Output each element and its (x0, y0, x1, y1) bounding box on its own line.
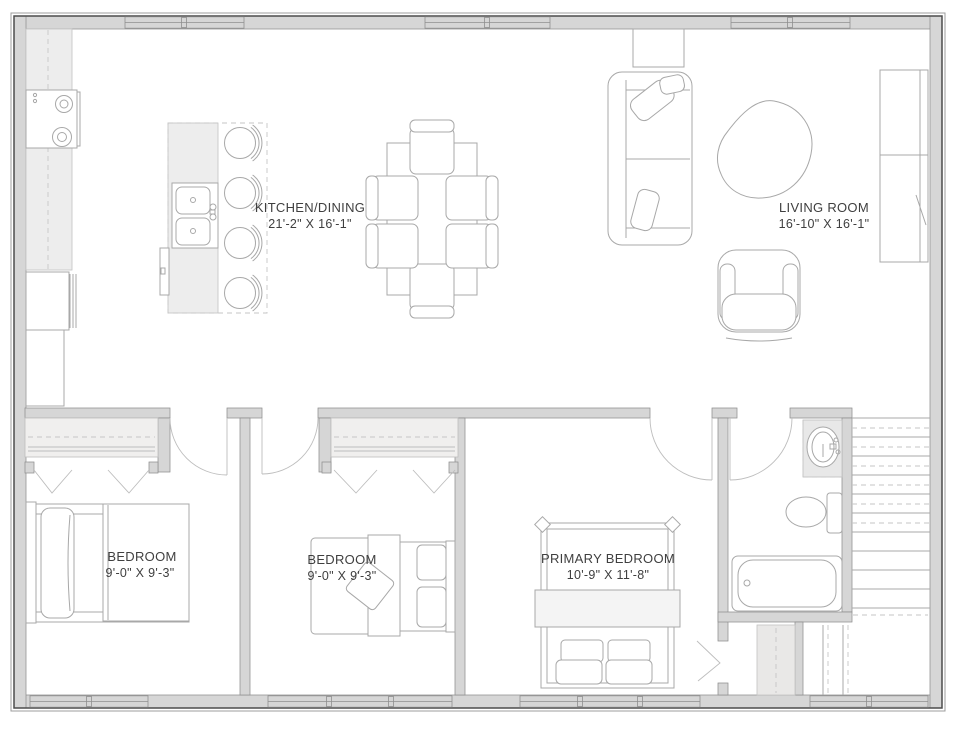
kitchen-area (26, 29, 498, 406)
bifold-door (334, 470, 377, 493)
pillow (608, 640, 650, 662)
understairs-closet (697, 625, 795, 695)
bar-stools (225, 125, 262, 311)
living-room-area (608, 29, 928, 341)
dining-chair (446, 224, 498, 268)
door-bedroom1 (170, 418, 227, 475)
bathtub (732, 556, 842, 611)
dining-chair (410, 120, 454, 174)
vanity-sink (803, 420, 842, 477)
bean-bag (717, 101, 811, 198)
bifold-door (413, 470, 455, 493)
floor-plan: KITCHEN/DINING 21'-2" X 16'-1" LIVING RO… (0, 0, 956, 737)
pillow (417, 545, 446, 580)
primary-bed (535, 517, 681, 688)
dining-chair (446, 176, 498, 220)
bedroom2-bed (311, 535, 455, 636)
dining-chair (366, 176, 418, 220)
door-bedroom2 (262, 418, 318, 474)
door-bathroom (730, 418, 792, 480)
kitchen-island (160, 123, 267, 313)
pantry-cabinet (26, 330, 64, 406)
refrigerator (26, 272, 76, 330)
bedroom1-dims: 9'-0" X 9'-3" (106, 566, 175, 580)
bedroom1-name: BEDROOM (107, 549, 176, 564)
pillow (417, 587, 446, 627)
pillow (561, 640, 603, 662)
toilet (786, 493, 842, 533)
bar-stool (225, 225, 262, 261)
bifold-door (34, 470, 72, 493)
door-primary-bedroom (650, 418, 712, 480)
closet-bedroom2 (322, 418, 458, 493)
label-kitchen-dining: KITCHEN/DINING 21'-2" X 16'-1" (255, 200, 365, 231)
living-room-dims: 16'-10" X 16'-1" (779, 217, 870, 231)
primary-bedroom-name: PRIMARY BEDROOM (541, 551, 675, 566)
wall-bathroom-stairs (842, 418, 852, 612)
pillow (556, 660, 602, 684)
floor-plan-drawing: KITCHEN/DINING 21'-2" X 16'-1" LIVING RO… (0, 0, 956, 737)
dining-chair (410, 264, 454, 318)
label-living-room: LIVING ROOM 16'-10" X 16'-1" (779, 200, 870, 231)
sofa (608, 72, 692, 245)
bedroom2-name: BEDROOM (307, 552, 376, 567)
doors (170, 418, 792, 480)
headboard (26, 502, 36, 623)
kitchen-counter (26, 29, 72, 270)
kitchen-dining-dims: 21'-2" X 16'-1" (268, 217, 351, 231)
bifold-door (697, 641, 720, 681)
dining-table-set (366, 120, 498, 318)
headboard (446, 541, 455, 632)
wall-bedroom2-primary (455, 418, 465, 695)
dining-chair (366, 224, 418, 268)
stair-treads (852, 418, 930, 608)
bar-stool (225, 275, 262, 311)
range (26, 90, 80, 148)
pillow (606, 660, 652, 684)
media-cabinet (880, 70, 928, 262)
tv-console (633, 29, 684, 67)
kitchen-sink (172, 183, 218, 248)
living-room-name: LIVING ROOM (779, 200, 869, 215)
bar-stool (225, 125, 262, 161)
bifold-door (108, 470, 149, 493)
armchair (718, 250, 800, 341)
wall-primary-bathroom (718, 418, 728, 641)
primary-bedroom-dims: 10'-9" X 11'-8" (567, 568, 650, 582)
blanket (535, 590, 680, 627)
bathroom-area (732, 420, 842, 611)
kitchen-dining-name: KITCHEN/DINING (255, 200, 365, 215)
wall-bedroom1-bedroom2 (240, 418, 250, 695)
closet-bedroom1 (25, 418, 158, 493)
bedroom2-dims: 9'-0" X 9'-3" (308, 569, 377, 583)
